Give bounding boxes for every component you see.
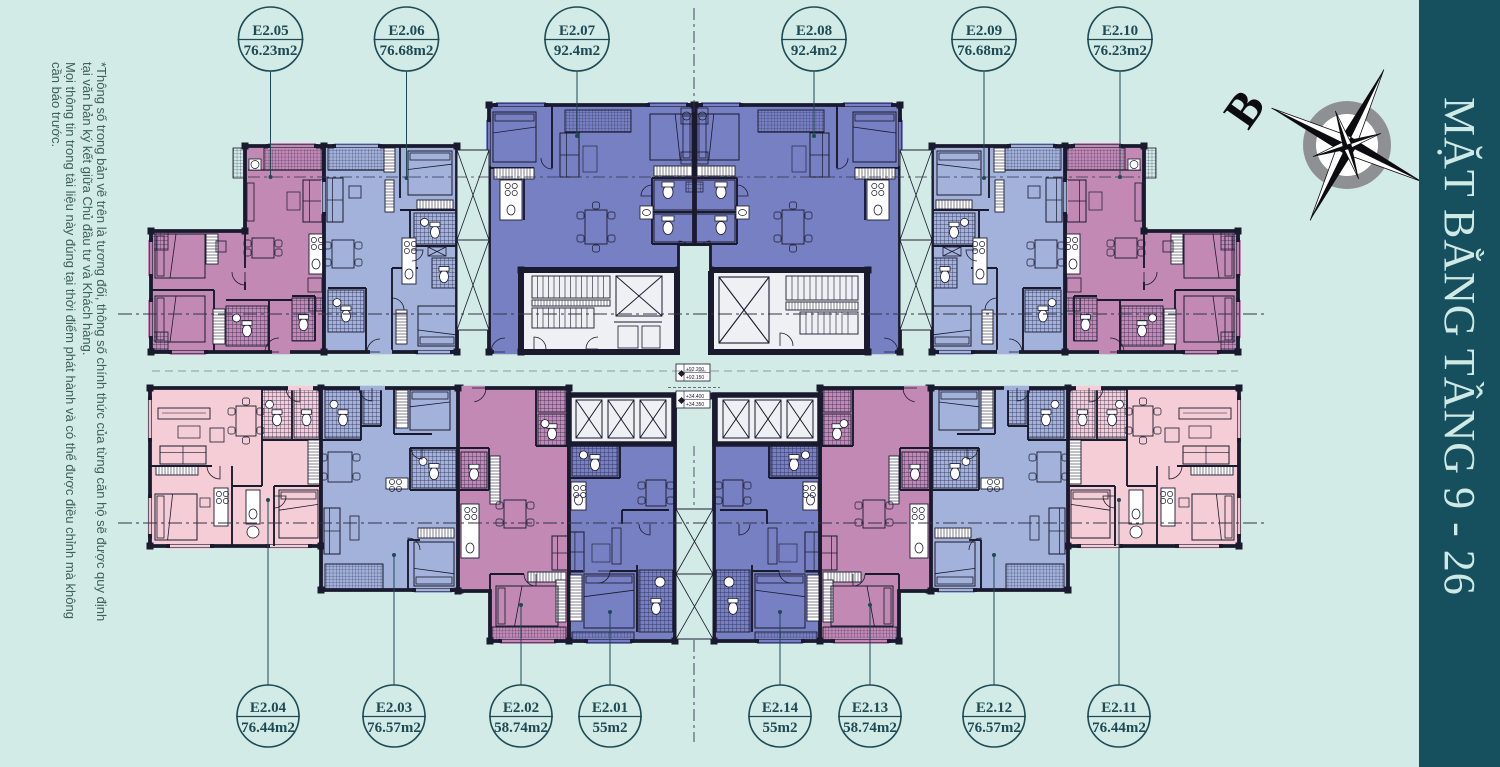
svg-text:E2.05: E2.05: [252, 23, 288, 39]
svg-text:E2.14: E2.14: [762, 700, 799, 716]
svg-text:E2.06: E2.06: [388, 23, 425, 39]
svg-text:E2.03: E2.03: [376, 700, 412, 716]
svg-text:55m2: 55m2: [763, 720, 798, 736]
svg-text:92.4m2: 92.4m2: [791, 43, 837, 59]
svg-text:76.68m2: 76.68m2: [380, 43, 434, 59]
svg-text:E2.08: E2.08: [796, 23, 832, 39]
svg-text:E2.13: E2.13: [852, 700, 888, 716]
svg-text:58.74m2: 58.74m2: [843, 720, 897, 736]
svg-text:92.4m2: 92.4m2: [554, 43, 600, 59]
svg-text:76.57m2: 76.57m2: [367, 720, 421, 736]
svg-text:76.57m2: 76.57m2: [967, 720, 1021, 736]
svg-text:E2.10: E2.10: [1102, 23, 1138, 39]
svg-text:E2.11: E2.11: [1101, 700, 1136, 716]
svg-text:E2.12: E2.12: [976, 700, 1012, 716]
svg-text:+34.350: +34.350: [686, 402, 704, 408]
svg-text:Mọi thông tin trong tài liệu n: Mọi thông tin trong tài liệu này đúng tạ…: [63, 62, 78, 619]
svg-text:76.44m2: 76.44m2: [241, 720, 295, 736]
svg-text:E2.09: E2.09: [966, 23, 1002, 39]
svg-text:76.23m2: 76.23m2: [1093, 43, 1147, 59]
svg-text:E2.04: E2.04: [250, 700, 287, 716]
svg-text:tại văn bản ký kết giữa Chủ đầ: tại văn bản ký kết giữa Chủ đầu tư và Kh…: [80, 62, 95, 355]
svg-text:E2.02: E2.02: [503, 700, 539, 716]
svg-text:55m2: 55m2: [593, 720, 628, 736]
svg-text:58.74m2: 58.74m2: [494, 720, 548, 736]
svg-text:MẶT BẰNG TẦNG 9 - 26: MẶT BẰNG TẦNG 9 - 26: [1435, 97, 1485, 596]
svg-text:E2.07: E2.07: [559, 23, 596, 39]
svg-text:cần báo trước.: cần báo trước.: [49, 62, 64, 147]
svg-text:E2.01: E2.01: [592, 700, 628, 716]
svg-text:76.44m2: 76.44m2: [1092, 720, 1146, 736]
svg-text:+34.400: +34.400: [686, 394, 704, 400]
svg-text:*Thông số trong bản vẽ trên là: *Thông số trong bản vẽ trên là tương đối…: [94, 62, 109, 621]
svg-text:76.23m2: 76.23m2: [244, 43, 298, 59]
svg-text:76.68m2: 76.68m2: [957, 43, 1011, 59]
svg-text:+92.200: +92.200: [686, 367, 704, 373]
svg-text:+92.150: +92.150: [686, 375, 704, 381]
